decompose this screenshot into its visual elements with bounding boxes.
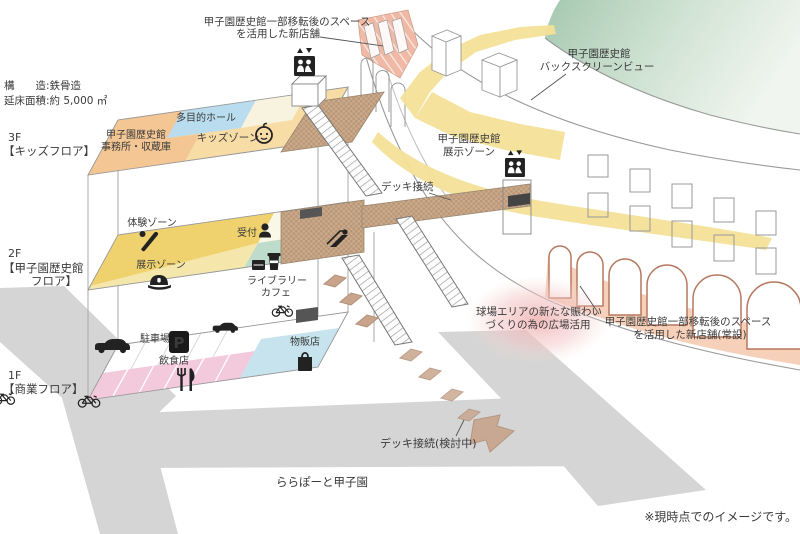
elevator-icon-stadium — [505, 150, 525, 177]
svg-text:P: P — [174, 334, 185, 352]
parking-sign: P — [169, 331, 189, 353]
floor-tag-2f: 2F — [8, 247, 21, 260]
newshop-right-label-1: 甲子園歴史館一部移転後のスペース — [605, 315, 772, 328]
library-label-2: カフェ — [261, 287, 291, 299]
deck-connect-label: デッキ接続 — [381, 180, 434, 193]
backscreen-label-1: 甲子園歴史館 — [568, 47, 631, 60]
deck-planned-label: デッキ接続(検討中) — [380, 436, 477, 450]
stadium-tenji-label-2: 展示ゾーン — [443, 146, 495, 158]
floor-name-2f-1: 【甲子園歴史館 — [3, 261, 84, 275]
kids-label: キッズゾーン — [197, 131, 259, 144]
multipurpose-label: 多目的ホール — [176, 111, 236, 124]
floor-name-3f: 【キッズフロア】 — [3, 144, 95, 158]
stairs-bridge-ground — [396, 216, 468, 307]
stadium-tenji-label-1: 甲子園歴史館 — [438, 132, 501, 145]
office-label-2: 事務所・収蔵庫 — [101, 140, 171, 153]
plaza-label-1: 球場エリアの新たな賑わい — [476, 305, 602, 318]
floor-name-2f-2: フロア】 — [31, 274, 77, 288]
lalaport-label: ららぽーと甲子園 — [276, 475, 368, 489]
diagram-canvas: 甲子園歴史館 事務所・収蔵庫 多目的ホール キッズゾーン 体験ゾーン 受付 — [0, 0, 800, 534]
shop-label: 物販店 — [290, 335, 320, 348]
uketsuke-label: 受付 — [237, 226, 257, 239]
floor-name-1f: 【商業フロア】 — [3, 382, 84, 396]
elevator-icon — [294, 48, 315, 76]
disclaimer-label: ※現時点でのイメージです。 — [644, 510, 797, 524]
floor-area-label: 延床面積:約 5,000 ㎡ — [4, 94, 108, 107]
library-label-1: ライブラリー — [247, 274, 307, 287]
office-label-1: 甲子園歴史館 — [106, 128, 166, 141]
floor-tag-1f: 1F — [8, 369, 21, 382]
newshop-fins — [364, 18, 408, 58]
newshop-top-label-2: を活用した新店舗 — [236, 27, 320, 40]
plaza-label-2: づくりの為の広場活用 — [486, 318, 591, 331]
newshop-right-label-2: を活用した新店舗(常設) — [633, 328, 746, 341]
backscreen-walkway — [400, 25, 556, 118]
taiken-label: 体験ゾーン — [127, 216, 177, 229]
structure-label: 構 造:鉄骨造 — [4, 79, 82, 92]
backscreen-label-2: バックスクリーンビュー — [540, 61, 655, 73]
facility-diagram: 甲子園歴史館 事務所・収蔵庫 多目的ホール キッズゾーン 体験ゾーン 受付 — [0, 0, 800, 534]
floor-tag-3f: 3F — [8, 131, 21, 144]
newshop-top-label-1: 甲子園歴史館一部移転後のスペース — [204, 15, 371, 28]
elevator-box-3f — [292, 76, 326, 106]
restaurant-label: 飲食店 — [159, 354, 189, 367]
parking-label: 駐車場 — [140, 332, 170, 345]
bicycle-icon-2 — [272, 306, 292, 316]
tenji-label: 展示ゾーン — [136, 259, 186, 271]
